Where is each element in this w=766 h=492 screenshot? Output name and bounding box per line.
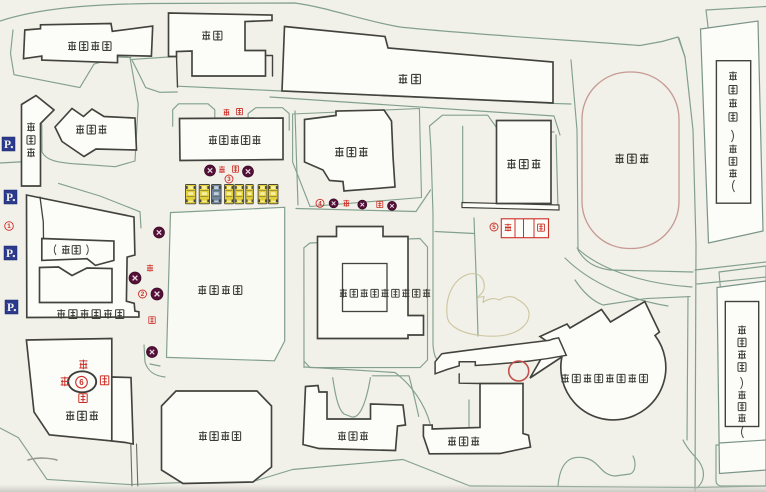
svg-text:P: P xyxy=(6,248,13,260)
svg-text:2: 2 xyxy=(141,291,145,298)
svg-text:P: P xyxy=(4,139,11,151)
svg-text:1: 1 xyxy=(7,223,11,230)
svg-text:6: 6 xyxy=(79,378,84,387)
svg-text:P: P xyxy=(6,192,13,204)
svg-text:3: 3 xyxy=(227,176,231,183)
svg-text:4: 4 xyxy=(318,201,322,208)
svg-text:5: 5 xyxy=(492,224,496,231)
svg-text:P: P xyxy=(7,302,14,314)
